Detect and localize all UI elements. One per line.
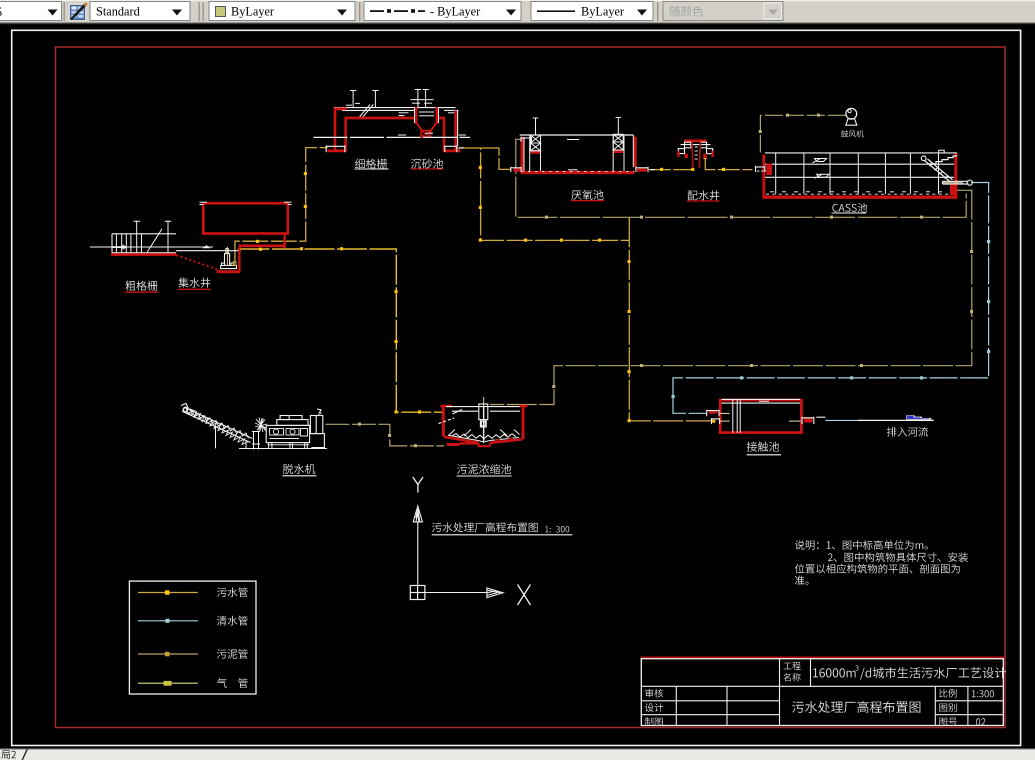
svg-text:ByLayer: ByLayer (231, 5, 274, 19)
svg-text:5: 5 (0, 5, 2, 19)
svg-text:Standard: Standard (96, 5, 140, 19)
svg-text:- ByLayer: - ByLayer (430, 5, 480, 19)
svg-text:ByLayer: ByLayer (581, 5, 624, 19)
